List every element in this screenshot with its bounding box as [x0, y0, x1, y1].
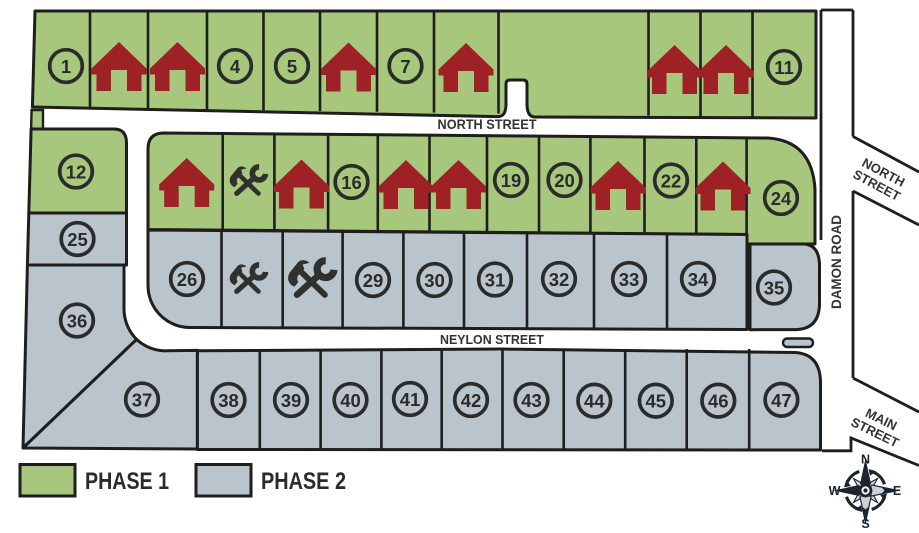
svg-text:30: 30	[424, 270, 445, 291]
svg-text:20: 20	[554, 170, 575, 191]
svg-text:E: E	[893, 484, 901, 498]
svg-text:37: 37	[132, 390, 153, 411]
svg-text:24: 24	[771, 188, 792, 209]
svg-text:41: 41	[400, 389, 421, 410]
svg-text:N: N	[861, 453, 870, 467]
svg-text:PHASE 1: PHASE 1	[85, 468, 169, 495]
svg-text:40: 40	[340, 390, 361, 411]
svg-text:31: 31	[485, 270, 506, 291]
svg-text:S: S	[861, 517, 869, 531]
svg-text:19: 19	[501, 170, 522, 191]
svg-text:33: 33	[619, 269, 640, 290]
svg-text:26: 26	[177, 269, 198, 290]
svg-text:36: 36	[67, 311, 88, 332]
svg-text:35: 35	[764, 278, 785, 299]
svg-text:12: 12	[66, 162, 87, 183]
svg-text:25: 25	[67, 229, 88, 250]
svg-text:47: 47	[771, 390, 792, 411]
svg-text:29: 29	[363, 270, 384, 291]
svg-text:NEYLON STREET: NEYLON STREET	[440, 332, 544, 347]
svg-text:34: 34	[688, 269, 709, 290]
svg-text:NORTH STREET: NORTH STREET	[438, 117, 538, 132]
svg-text:DAMON ROAD: DAMON ROAD	[829, 215, 844, 309]
svg-text:46: 46	[708, 391, 729, 412]
svg-text:PHASE 2: PHASE 2	[261, 468, 346, 495]
svg-text:42: 42	[461, 390, 482, 411]
svg-text:16: 16	[341, 172, 362, 193]
svg-text:W: W	[829, 484, 841, 498]
svg-text:45: 45	[646, 391, 667, 412]
svg-text:1: 1	[61, 56, 71, 77]
svg-text:38: 38	[218, 390, 239, 411]
svg-text:32: 32	[549, 269, 570, 290]
svg-text:11: 11	[774, 57, 794, 78]
svg-text:22: 22	[661, 171, 682, 192]
svg-text:44: 44	[584, 391, 605, 412]
svg-text:43: 43	[521, 390, 542, 411]
svg-text:39: 39	[281, 390, 302, 411]
svg-text:7: 7	[400, 56, 410, 77]
svg-text:5: 5	[287, 56, 297, 77]
svg-text:4: 4	[230, 56, 241, 77]
